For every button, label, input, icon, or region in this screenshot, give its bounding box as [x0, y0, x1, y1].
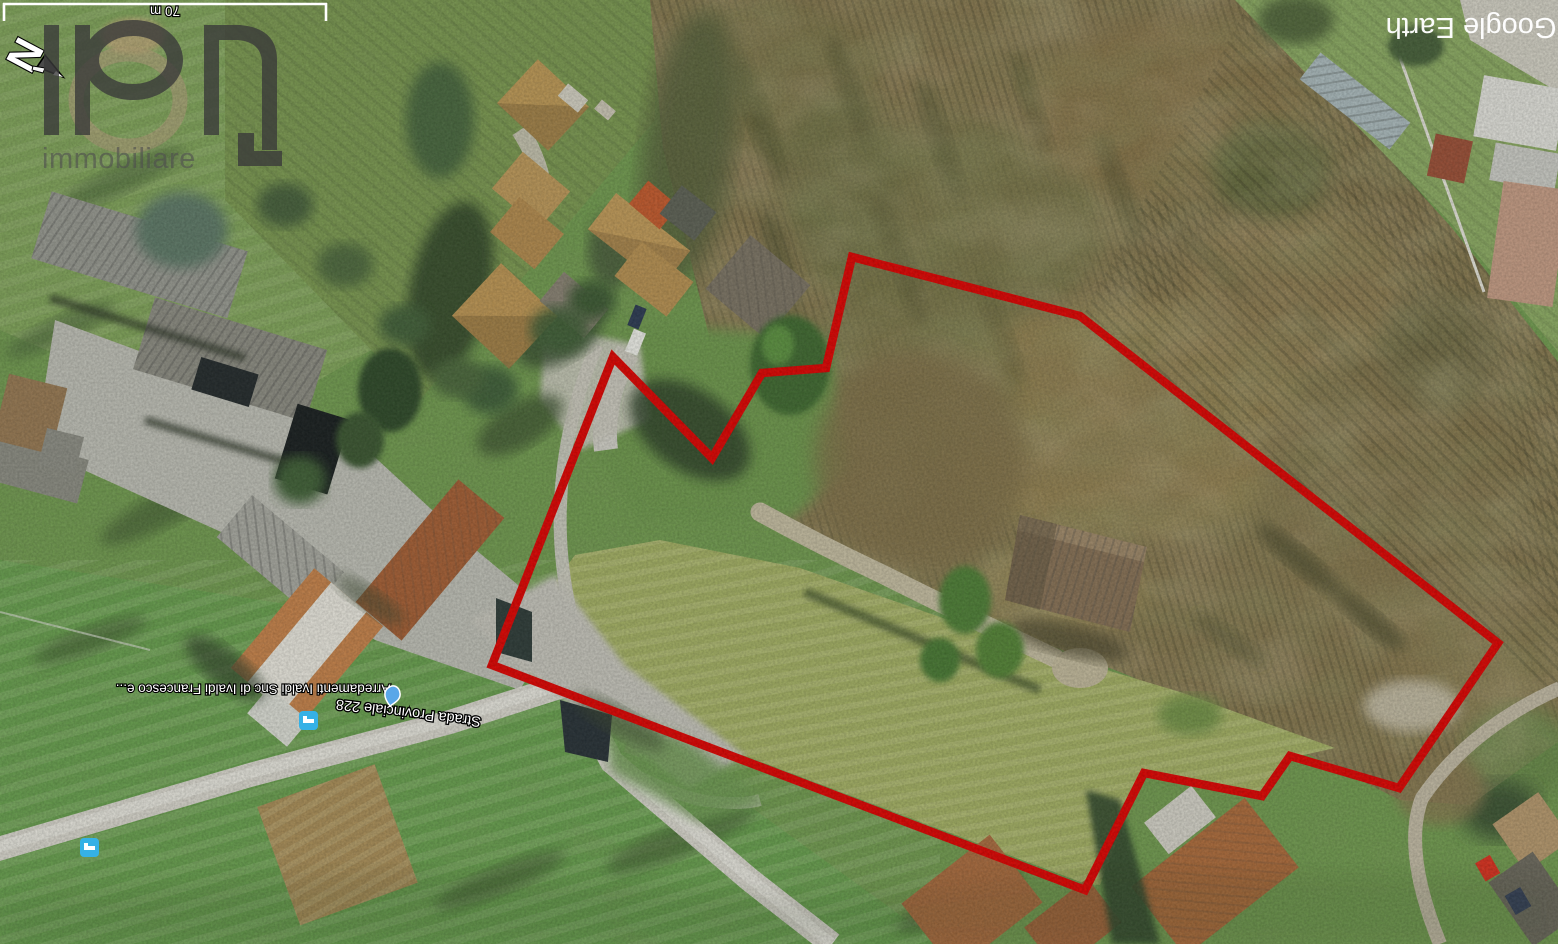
svg-text:70 m: 70 m	[150, 3, 180, 18]
svg-text:immobiliare: immobiliare	[42, 143, 196, 175]
svg-text:Google Earth: Google Earth	[1386, 11, 1557, 43]
svg-text:Arredamenti Ivaldi Snc di Ival: Arredamenti Ivaldi Snc di Ivaldi Frances…	[116, 681, 391, 696]
